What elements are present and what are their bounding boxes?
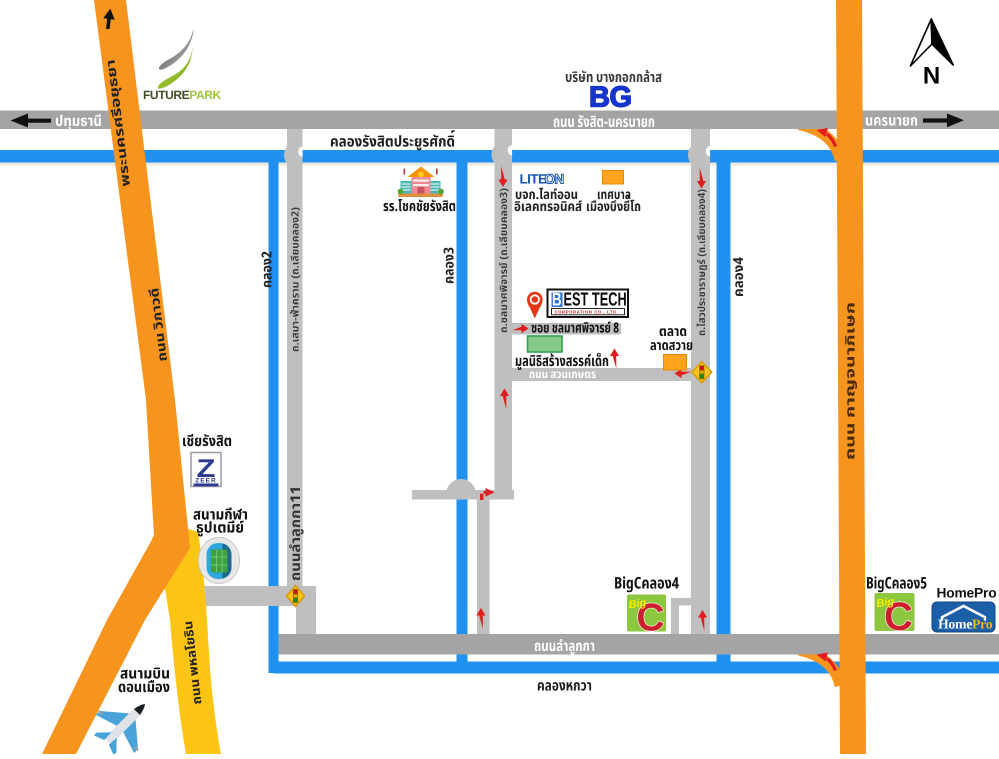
svg-text:EST TECH: EST TECH: [564, 288, 627, 310]
svg-text:Big: Big: [628, 597, 647, 611]
svg-text:N: N: [923, 63, 940, 90]
svg-text:FUTUREPARK: FUTUREPARK: [143, 88, 222, 102]
svg-text:LITE: LITE: [520, 172, 547, 187]
svg-text:HomePro: HomePro: [938, 617, 993, 632]
svg-text:ON: ON: [545, 172, 564, 187]
svg-text:B: B: [552, 289, 562, 310]
svg-text:HomePro: HomePro: [937, 586, 997, 601]
svg-text:Big: Big: [876, 596, 895, 610]
svg-text:CORPORATION CO., LTD.: CORPORATION CO., LTD.: [555, 309, 619, 314]
svg-text:BG: BG: [589, 82, 632, 114]
svg-text:ZEER: ZEER: [195, 478, 216, 485]
